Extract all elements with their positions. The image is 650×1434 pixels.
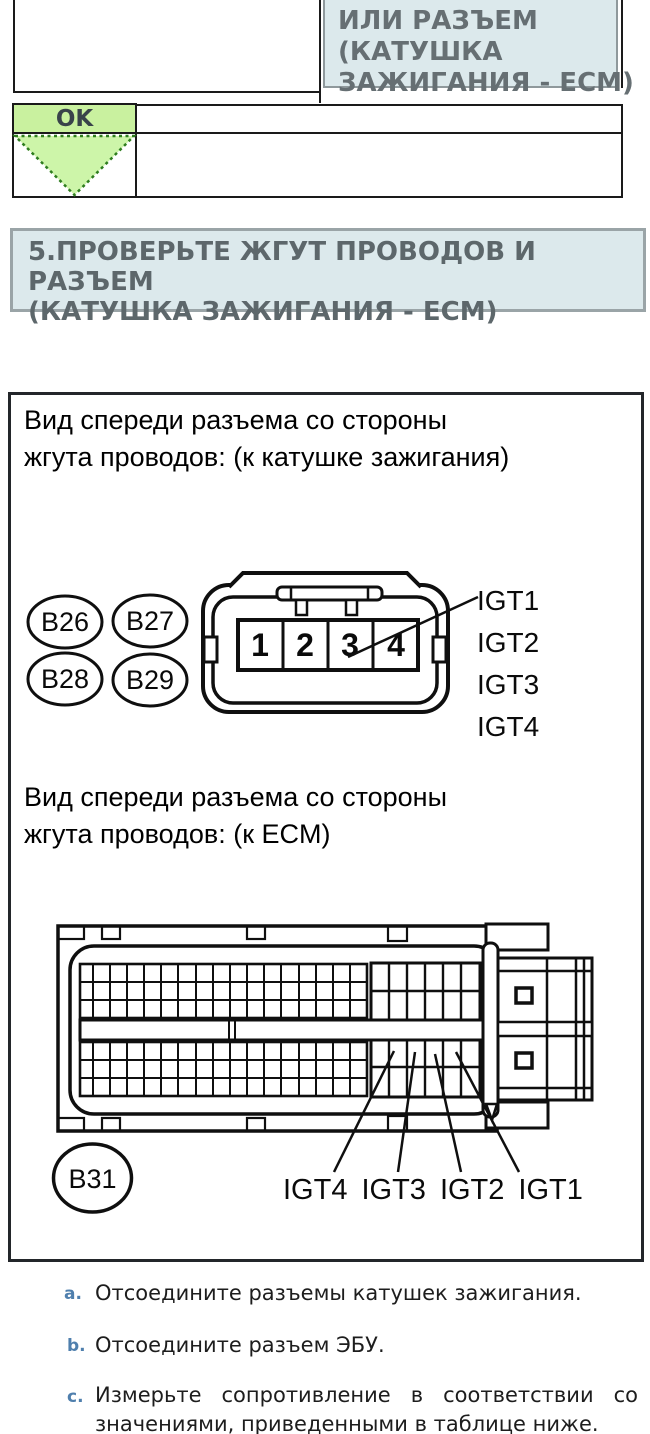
ok-arrow-down-icon <box>12 134 137 198</box>
flow-ok-cell: OK <box>12 103 137 134</box>
instruction-a-marker: a. <box>64 1284 82 1304</box>
tag-b26: B26 <box>41 607 89 637</box>
instruction-c-text-line1: Измерьте сопротивление в соответствии со <box>95 1381 638 1410</box>
step-heading: 5.ПРОВЕРЬТЕ ЖГУТ ПРОВОДОВ И РАЗЪЕМ (КАТУ… <box>10 228 646 312</box>
signal-igt2: IGT2 <box>440 1174 504 1207</box>
flow-or-cell-text: ИЛИ РАЗЪЕМ (КАТУШКА ЗАЖИГАНИЯ - ECM) <box>338 6 638 99</box>
instruction-a-text: Отсоедините разъемы катушек зажигания. <box>95 1279 638 1308</box>
coil-view-caption: Вид спереди разъема со стороны жгута про… <box>24 402 509 476</box>
table-col-line <box>319 0 321 103</box>
signal-igt1: IGT1 <box>518 1174 582 1207</box>
tag-b29: B29 <box>126 665 174 695</box>
table-left-border <box>13 0 15 93</box>
coil-connector-diagram: 1 2 3 4 B26 B27 B28 B29 <box>20 560 485 750</box>
signal-igt1: IGT1 <box>477 580 539 622</box>
tag-b31: B31 <box>68 1164 116 1194</box>
instruction-b-text: Отсоедините разъем ЭБУ. <box>95 1331 638 1360</box>
tag-b27: B27 <box>126 606 174 636</box>
instruction-c-text-line2: значениями, приведенными в таблице ниже. <box>95 1410 638 1434</box>
flow-or-cell: ИЛИ РАЗЪЕМ (КАТУШКА ЗАЖИГАНИЯ - ECM) <box>323 0 618 88</box>
signal-igt3: IGT3 <box>477 664 539 706</box>
flow-empty-row-2 <box>135 132 623 198</box>
flow-empty-row-1 <box>135 104 623 134</box>
ecm-signal-labels: IGT4 IGT3 IGT2 IGT1 <box>283 1174 583 1207</box>
ecm-view-caption: Вид спереди разъема со стороны жгута про… <box>24 779 447 853</box>
ok-label: OK <box>56 106 93 132</box>
signal-igt3: IGT3 <box>361 1174 425 1207</box>
tag-b28: B28 <box>41 664 89 694</box>
signal-igt4: IGT4 <box>283 1174 347 1207</box>
pin-1-label: 1 <box>251 627 269 663</box>
instruction-c-marker: c. <box>67 1387 84 1407</box>
signal-igt2: IGT2 <box>477 622 539 664</box>
table-row-line <box>13 91 321 93</box>
pin-3-label: 3 <box>341 627 359 663</box>
pin-2-label: 2 <box>296 627 314 663</box>
coil-signal-labels: IGT1 IGT2 IGT3 IGT4 <box>477 580 539 748</box>
step-heading-line1: 5.ПРОВЕРЬТЕ ЖГУТ ПРОВОДОВ И РАЗЪЕМ <box>28 237 643 297</box>
signal-igt4: IGT4 <box>477 706 539 748</box>
manual-page: ИЛИ РАЗЪЕМ (КАТУШКА ЗАЖИГАНИЯ - ECM) OK … <box>0 0 650 1434</box>
instruction-b-marker: b. <box>67 1336 86 1356</box>
step-heading-line2: (КАТУШКА ЗАЖИГАНИЯ - ECM) <box>28 297 643 327</box>
